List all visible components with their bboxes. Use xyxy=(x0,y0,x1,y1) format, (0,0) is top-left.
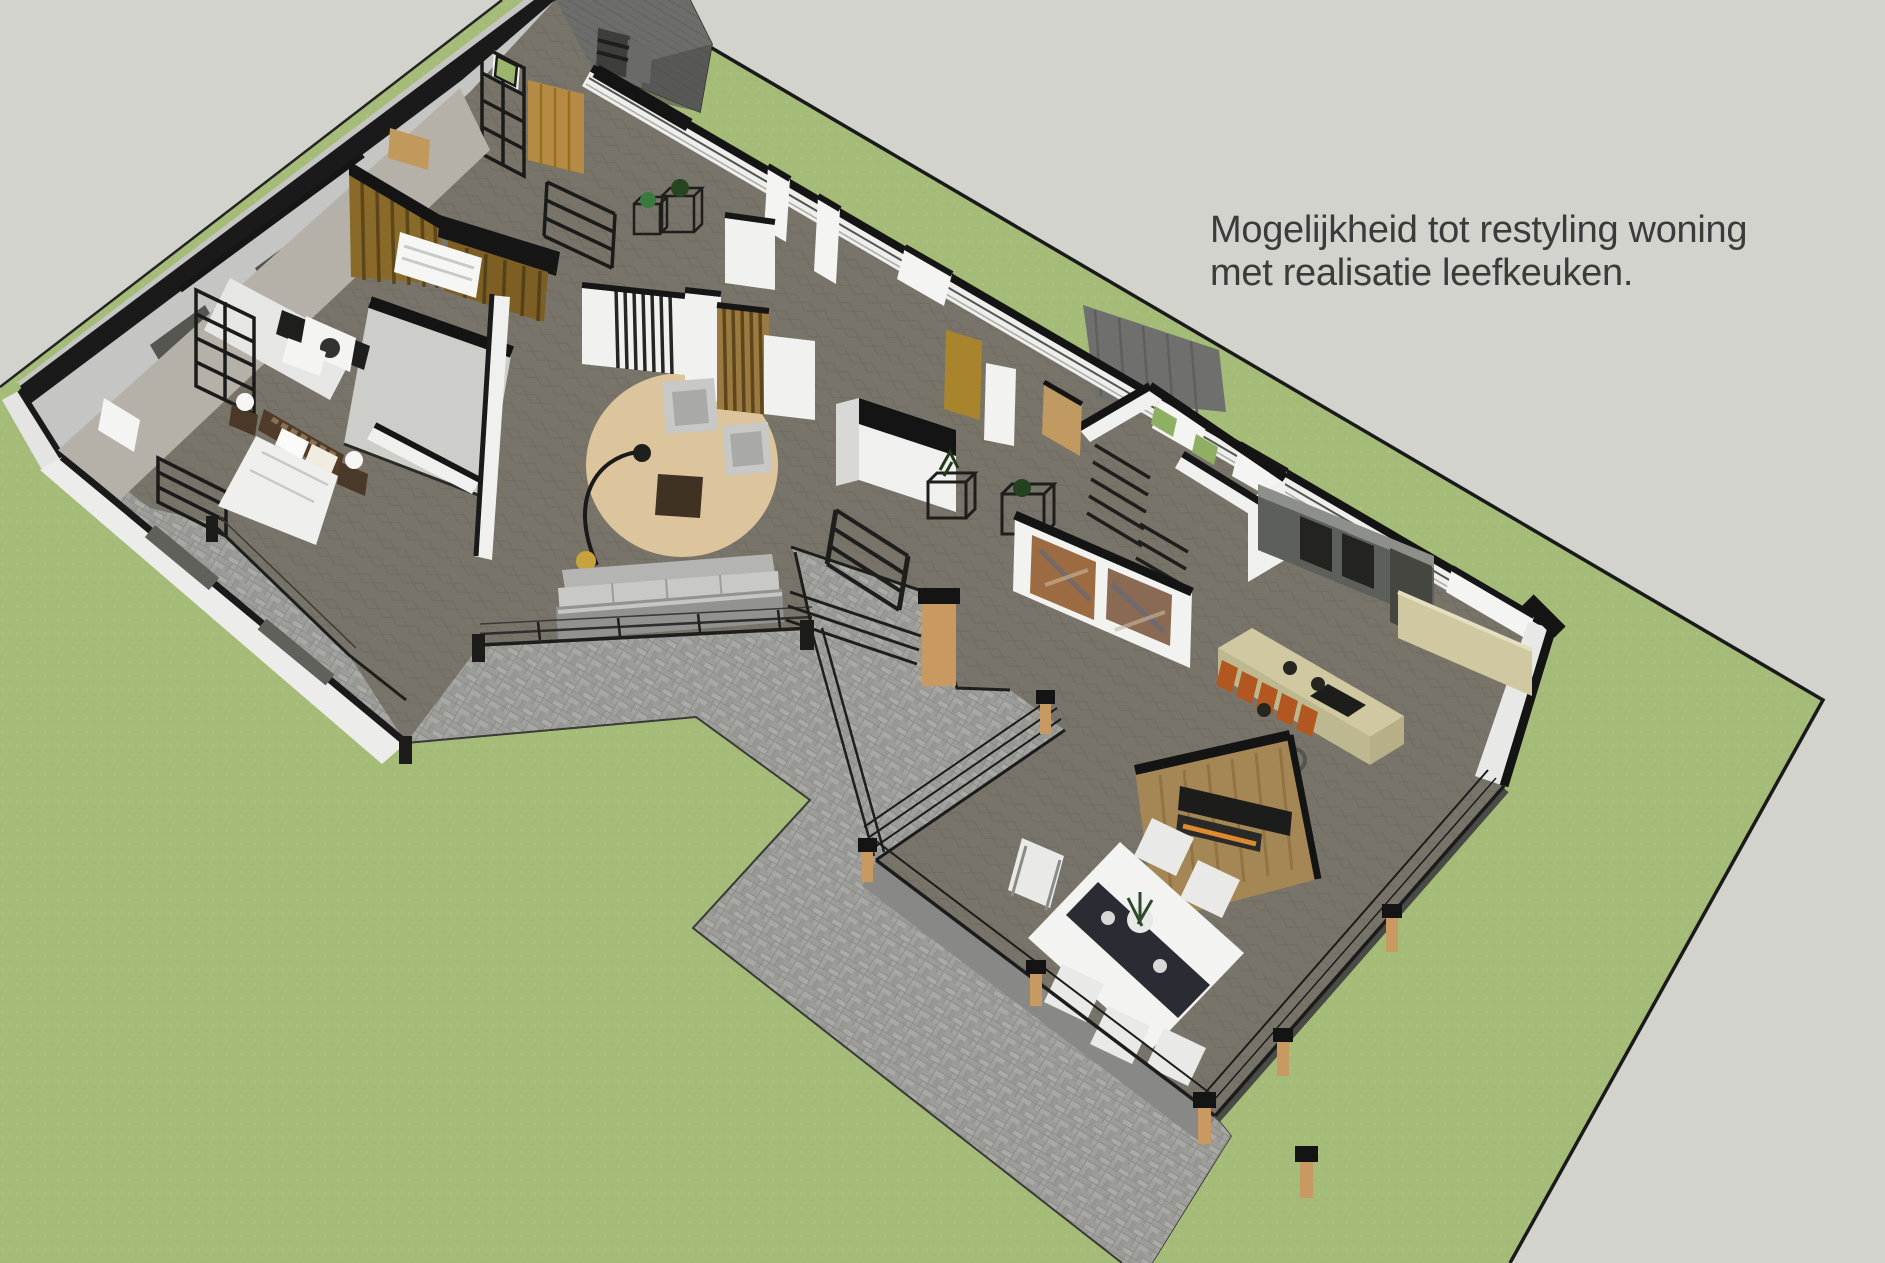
svg-text:met realisatie leefkeuken.: met realisatie leefkeuken. xyxy=(1210,252,1633,294)
svg-text:Mogelijkheid tot restyling won: Mogelijkheid tot restyling woning xyxy=(1210,209,1747,251)
